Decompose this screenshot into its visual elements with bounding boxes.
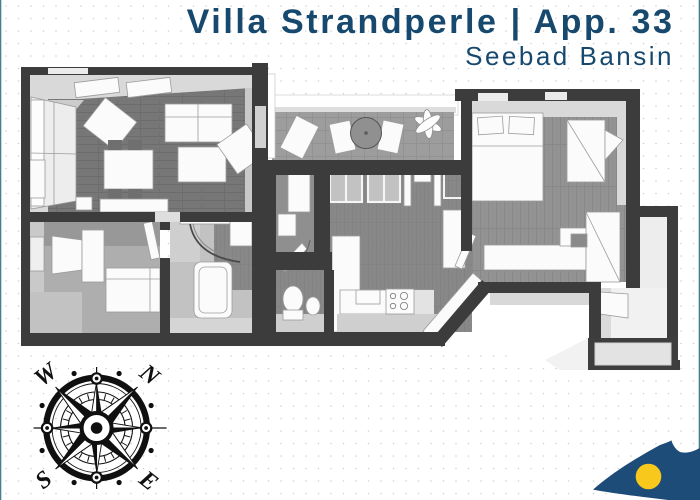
svg-text:Seebad Bansin: Seebad Bansin <box>465 41 674 71</box>
svg-text:Villa Strandperle | App. 33: Villa Strandperle | App. 33 <box>187 3 675 41</box>
